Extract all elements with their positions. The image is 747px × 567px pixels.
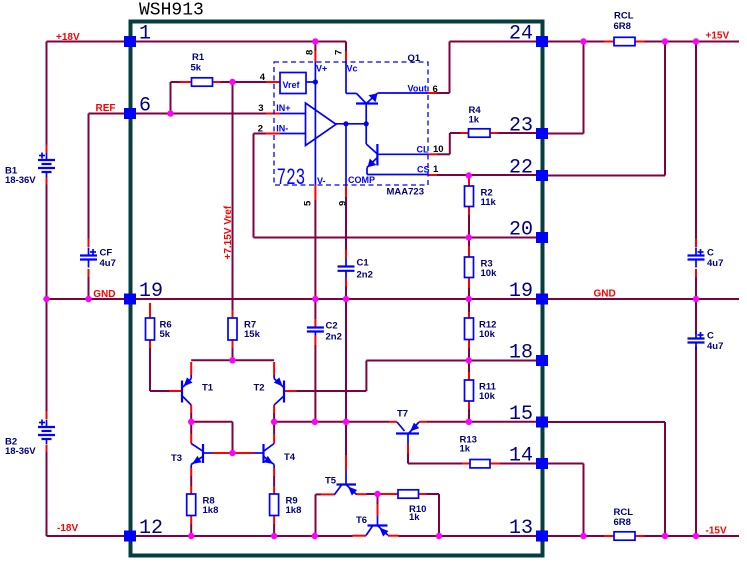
svg-text:1: 1 [139,23,151,46]
svg-text:6: 6 [139,95,151,118]
svg-text:3: 3 [258,103,263,114]
svg-text:15k: 15k [244,329,261,340]
svg-text:1: 1 [433,164,439,175]
svg-text:WSH913: WSH913 [139,1,204,21]
svg-text:19: 19 [509,280,533,303]
svg-text:18: 18 [509,342,533,365]
svg-text:13: 13 [509,517,533,540]
svg-text:6: 6 [433,84,438,95]
svg-text:T4: T4 [284,452,296,463]
svg-text:10: 10 [433,144,444,155]
svg-text:15: 15 [509,403,533,426]
svg-text:18-36V: 18-36V [5,446,36,457]
svg-text:4u7: 4u7 [707,258,723,269]
svg-text:23: 23 [509,115,533,138]
svg-text:723: 723 [277,165,306,192]
svg-text:Vref: Vref [283,80,301,90]
svg-text:2: 2 [258,124,263,135]
svg-text:T6: T6 [356,515,367,526]
svg-text:T1: T1 [202,383,214,394]
svg-text:1k8: 1k8 [203,505,219,516]
svg-text:CL: CL [417,145,429,155]
svg-text:Vout: Vout [408,84,427,94]
svg-text:6R8: 6R8 [614,517,631,528]
svg-text:8: 8 [305,50,316,55]
svg-text:T7: T7 [397,409,408,420]
svg-text:C1: C1 [357,258,370,269]
svg-text:14: 14 [509,445,533,468]
svg-text:MAA723: MAA723 [387,187,425,198]
svg-text:18-36V: 18-36V [5,175,36,186]
svg-text:V+: V+ [316,64,327,74]
svg-text:12: 12 [139,517,163,540]
svg-text:-18V: -18V [57,523,78,534]
svg-text:10k: 10k [479,329,496,340]
svg-text:4u7: 4u7 [100,258,116,269]
svg-text:Vc: Vc [347,64,358,74]
svg-text:10k: 10k [481,268,498,279]
svg-text:T3: T3 [171,453,182,464]
svg-text:1k: 1k [409,512,420,523]
svg-text:T2: T2 [254,383,265,394]
svg-text:-15V: -15V [706,526,727,537]
svg-text:GND: GND [594,289,616,300]
svg-text:C: C [707,331,714,342]
svg-text:R1: R1 [192,52,205,63]
svg-text:IN+: IN+ [276,103,290,113]
svg-text:CS: CS [417,165,430,175]
svg-text:CF: CF [100,248,113,259]
svg-text:V-: V- [317,176,326,186]
svg-text:6R8: 6R8 [614,21,631,32]
svg-text:1k: 1k [469,115,480,126]
svg-text:22: 22 [509,157,533,180]
svg-text:4: 4 [260,72,266,83]
svg-text:9: 9 [338,201,349,206]
svg-text:+7.15V Vref: +7.15V Vref [223,205,234,259]
svg-text:T5: T5 [325,476,337,487]
svg-text:5: 5 [303,200,314,206]
svg-text:5k: 5k [191,63,202,74]
svg-text:2n2: 2n2 [357,270,373,281]
svg-text:+18V: +18V [56,32,80,43]
svg-text:IN-: IN- [276,123,288,133]
svg-text:1k: 1k [460,444,471,455]
svg-text:REF: REF [96,103,116,114]
svg-text:24: 24 [509,23,533,46]
svg-text:11k: 11k [481,197,497,208]
svg-text:RCL: RCL [614,11,634,22]
svg-text:GND: GND [93,289,115,300]
svg-text:COMP: COMP [348,175,375,185]
svg-text:19: 19 [139,280,163,303]
svg-text:2n2: 2n2 [326,332,342,343]
svg-text:10k: 10k [479,391,496,402]
svg-text:+15V: +15V [706,31,730,42]
svg-text:5k: 5k [160,329,171,340]
svg-text:Q1: Q1 [408,53,421,64]
svg-text:7: 7 [334,50,345,55]
svg-text:C2: C2 [326,321,338,332]
svg-text:20: 20 [509,219,533,242]
svg-text:1k8: 1k8 [286,505,302,516]
svg-text:C: C [707,248,714,259]
svg-text:4u7: 4u7 [707,341,723,352]
